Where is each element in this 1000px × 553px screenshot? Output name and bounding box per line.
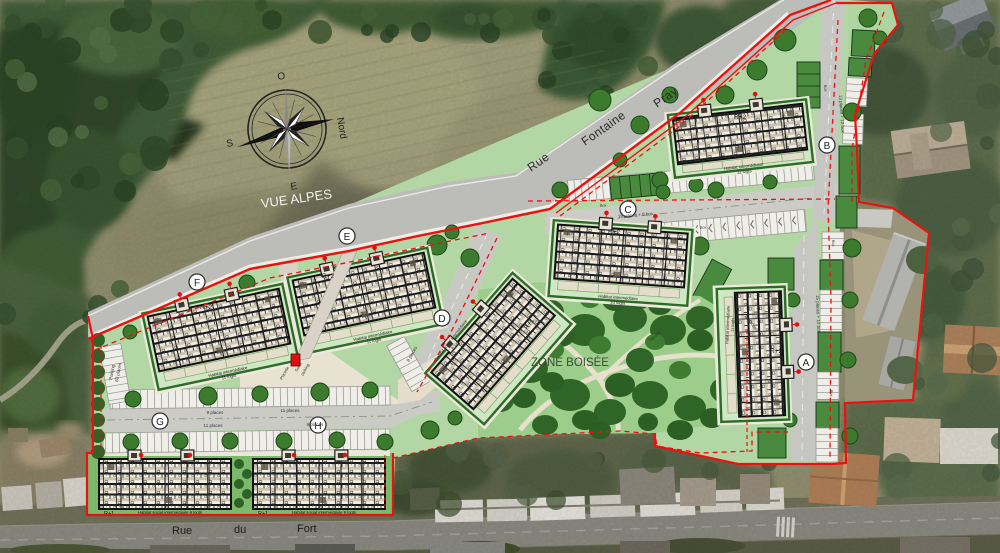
svg-text:Box: Box (823, 85, 827, 92)
svg-text:G: G (156, 417, 164, 428)
svg-text:9 places: 9 places (207, 410, 225, 415)
svg-text:Rue: Rue (172, 525, 192, 537)
svg-text:Fort: Fort (297, 523, 317, 535)
svg-text:R+2: R+2 (734, 114, 746, 121)
svg-text:F: F (194, 278, 200, 289)
svg-text:D: D (438, 314, 445, 325)
svg-text:E: E (344, 232, 351, 243)
svg-text:Box: Box (700, 225, 707, 230)
svg-text:Box: Box (831, 240, 835, 247)
svg-text:Box: Box (829, 390, 833, 397)
svg-text:R+2: R+2 (770, 348, 782, 355)
svg-text:Box: Box (600, 203, 607, 208)
svg-text:11 places: 11 places (204, 423, 224, 428)
svg-text:10 logts: 10 logts (610, 300, 625, 306)
svg-text:B: B (824, 141, 831, 152)
svg-text:R+2: R+2 (322, 273, 334, 280)
svg-text:du: du (234, 524, 246, 536)
svg-text:R+2: R+2 (200, 304, 212, 311)
svg-text:9 places: 9 places (307, 422, 325, 427)
svg-text:11 logts: 11 logts (730, 318, 735, 333)
svg-text:11 places: 11 places (281, 408, 301, 413)
svg-text:ZONE BOISÉE: ZONE BOISÉE (531, 356, 609, 369)
svg-text:R+2: R+2 (608, 229, 620, 236)
svg-text:A: A (803, 358, 810, 369)
